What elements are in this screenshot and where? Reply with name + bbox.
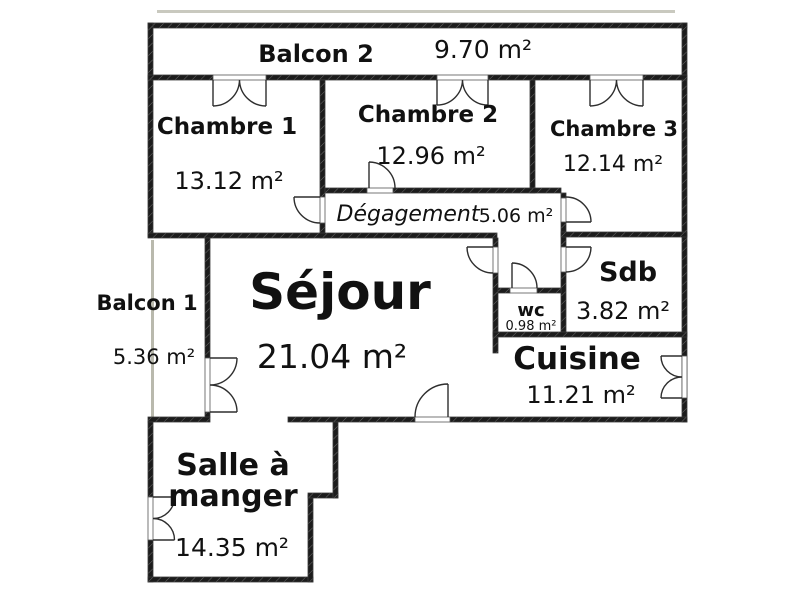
- door-chambre3-balcony: [590, 80, 643, 106]
- balcony2-overhang-line: [157, 10, 675, 13]
- threshold-sdb-door: [561, 247, 566, 272]
- wall-outer-top: [148, 23, 687, 28]
- wall-wc-top-a: [498, 288, 510, 293]
- room-label-wc: wc: [517, 300, 544, 321]
- room-label-cuisine: Cuisine: [513, 341, 641, 377]
- threshold-sam-window: [148, 497, 153, 540]
- wall-balcony2-a: [148, 75, 213, 80]
- wall-sejour-left-lower: [205, 412, 210, 417]
- wall-sam-left-upper: [148, 422, 153, 497]
- room-area-cuisine: 11.21 m²: [526, 381, 635, 409]
- room-area-chambre2: 12.96 m²: [376, 142, 485, 170]
- wall-wc-top-b: [537, 288, 561, 293]
- threshold-chambre3-door: [561, 198, 566, 222]
- room-area-chambre1: 13.12 m²: [174, 167, 283, 195]
- floor-plan-svg: Balcon 2 9.70 m² Chambre 1 13.12 m² Cham…: [0, 0, 800, 600]
- wall-hall-top-a: [325, 188, 367, 193]
- wall-bottom-c: [450, 417, 687, 422]
- wall-bottom-b: [288, 417, 415, 422]
- room-area-degagement: 5.06 m²: [479, 205, 553, 227]
- room-label-chambre2: Chambre 2: [358, 102, 498, 128]
- room-labels: Balcon 2 9.70 m² Chambre 1 13.12 m² Cham…: [96, 35, 678, 562]
- door-balcony1-sejour: [210, 358, 237, 412]
- wall-bottom-a: [148, 417, 210, 422]
- room-label-salle-a-manger-line1: Salle à: [176, 448, 289, 483]
- balcony-edges: [157, 10, 675, 13]
- door-chambre3-hall: [566, 197, 591, 222]
- threshold-chambre3-balcony: [590, 75, 643, 80]
- room-label-degagement: Dégagement: [337, 202, 481, 227]
- threshold-chambre2-balcony: [437, 75, 488, 80]
- wall-sam-bottom: [148, 577, 313, 582]
- door-sejour-hall: [467, 247, 493, 273]
- wall-corridor-left-b: [493, 273, 498, 353]
- wall-balcony2-c: [488, 75, 590, 80]
- threshold-sejour-door: [493, 247, 498, 273]
- room-area-sdb: 3.82 m²: [576, 297, 670, 325]
- room-area-wc: 0.98 m²: [506, 319, 557, 334]
- room-area-sejour: 21.04 m²: [257, 337, 407, 376]
- room-label-salle-a-manger-line2: manger: [168, 479, 298, 514]
- floor-plan: Balcon 2 9.70 m² Chambre 1 13.12 m² Cham…: [0, 0, 800, 600]
- door-chambre1-balcony: [213, 80, 266, 106]
- wall-sdb-left: [561, 272, 566, 332]
- door-wc: [512, 263, 537, 288]
- threshold-chambre2-door: [367, 188, 393, 193]
- room-area-balcon1: 5.36 m²: [113, 345, 195, 369]
- wall-balcony2-b: [266, 75, 437, 80]
- room-label-chambre3: Chambre 3: [550, 117, 678, 141]
- threshold-chambre1-balcony: [213, 75, 266, 80]
- door-sdb: [566, 247, 591, 272]
- room-label-balcon2: Balcon 2: [258, 40, 374, 68]
- wall-ch1-ch2-upper: [320, 80, 325, 197]
- room-label-chambre1: Chambre 1: [157, 114, 297, 140]
- wall-sejour-left-upper: [205, 238, 210, 358]
- balcony1-railing-line: [151, 240, 154, 417]
- wall-sdb-top: [561, 232, 687, 237]
- wall-sam-left-lower: [148, 540, 153, 582]
- room-area-salle-a-manger: 14.35 m²: [175, 533, 289, 562]
- door-exterior-bottom: [415, 384, 448, 417]
- wall-sam-right-upper: [333, 422, 338, 498]
- threshold-wc-door: [510, 288, 537, 293]
- room-area-chambre3: 12.14 m²: [563, 152, 663, 177]
- room-area-balcon2: 9.70 m²: [434, 35, 532, 64]
- room-label-sejour: Séjour: [249, 263, 431, 321]
- balcony1-railing-group: [151, 240, 154, 417]
- room-label-balcon1: Balcon 1: [96, 291, 197, 315]
- wall-hall-right-a: [561, 193, 566, 198]
- wall-hall-top-b: [393, 188, 561, 193]
- threshold-balcony1-doors: [205, 358, 210, 412]
- wall-sejour-top: [148, 233, 497, 238]
- wall-ch2-ch3: [530, 80, 535, 193]
- threshold-exterior-door: [415, 417, 450, 422]
- door-chambre1-hall: [294, 197, 320, 223]
- wall-outer-left-upper: [148, 23, 153, 237]
- wall-corridor-left-a: [493, 238, 498, 247]
- room-label-sdb: Sdb: [599, 257, 657, 288]
- window-cuisine: [661, 356, 682, 398]
- wall-sam-right-lower: [308, 495, 313, 582]
- threshold-cuisine-window: [682, 356, 687, 398]
- wall-balcony2-d: [643, 75, 687, 80]
- threshold-chambre1-door: [320, 197, 325, 223]
